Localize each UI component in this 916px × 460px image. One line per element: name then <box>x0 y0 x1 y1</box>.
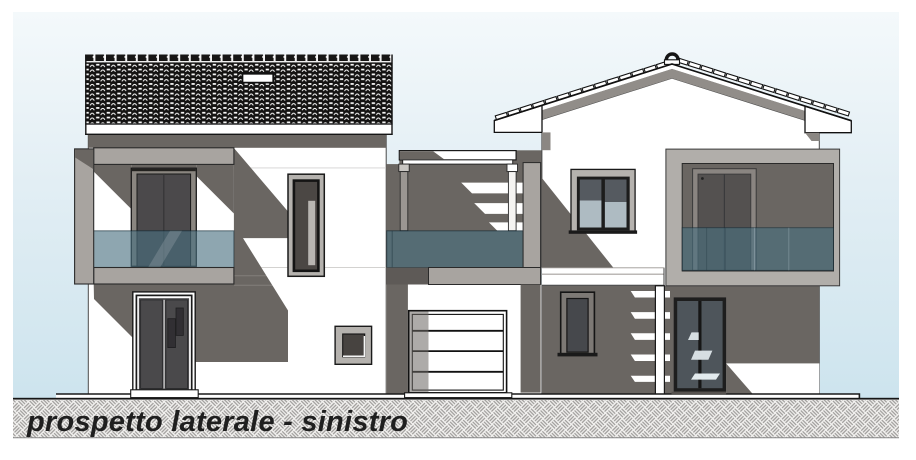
svg-text:prospetto laterale - sinistro: prospetto laterale - sinistro <box>26 406 408 438</box>
